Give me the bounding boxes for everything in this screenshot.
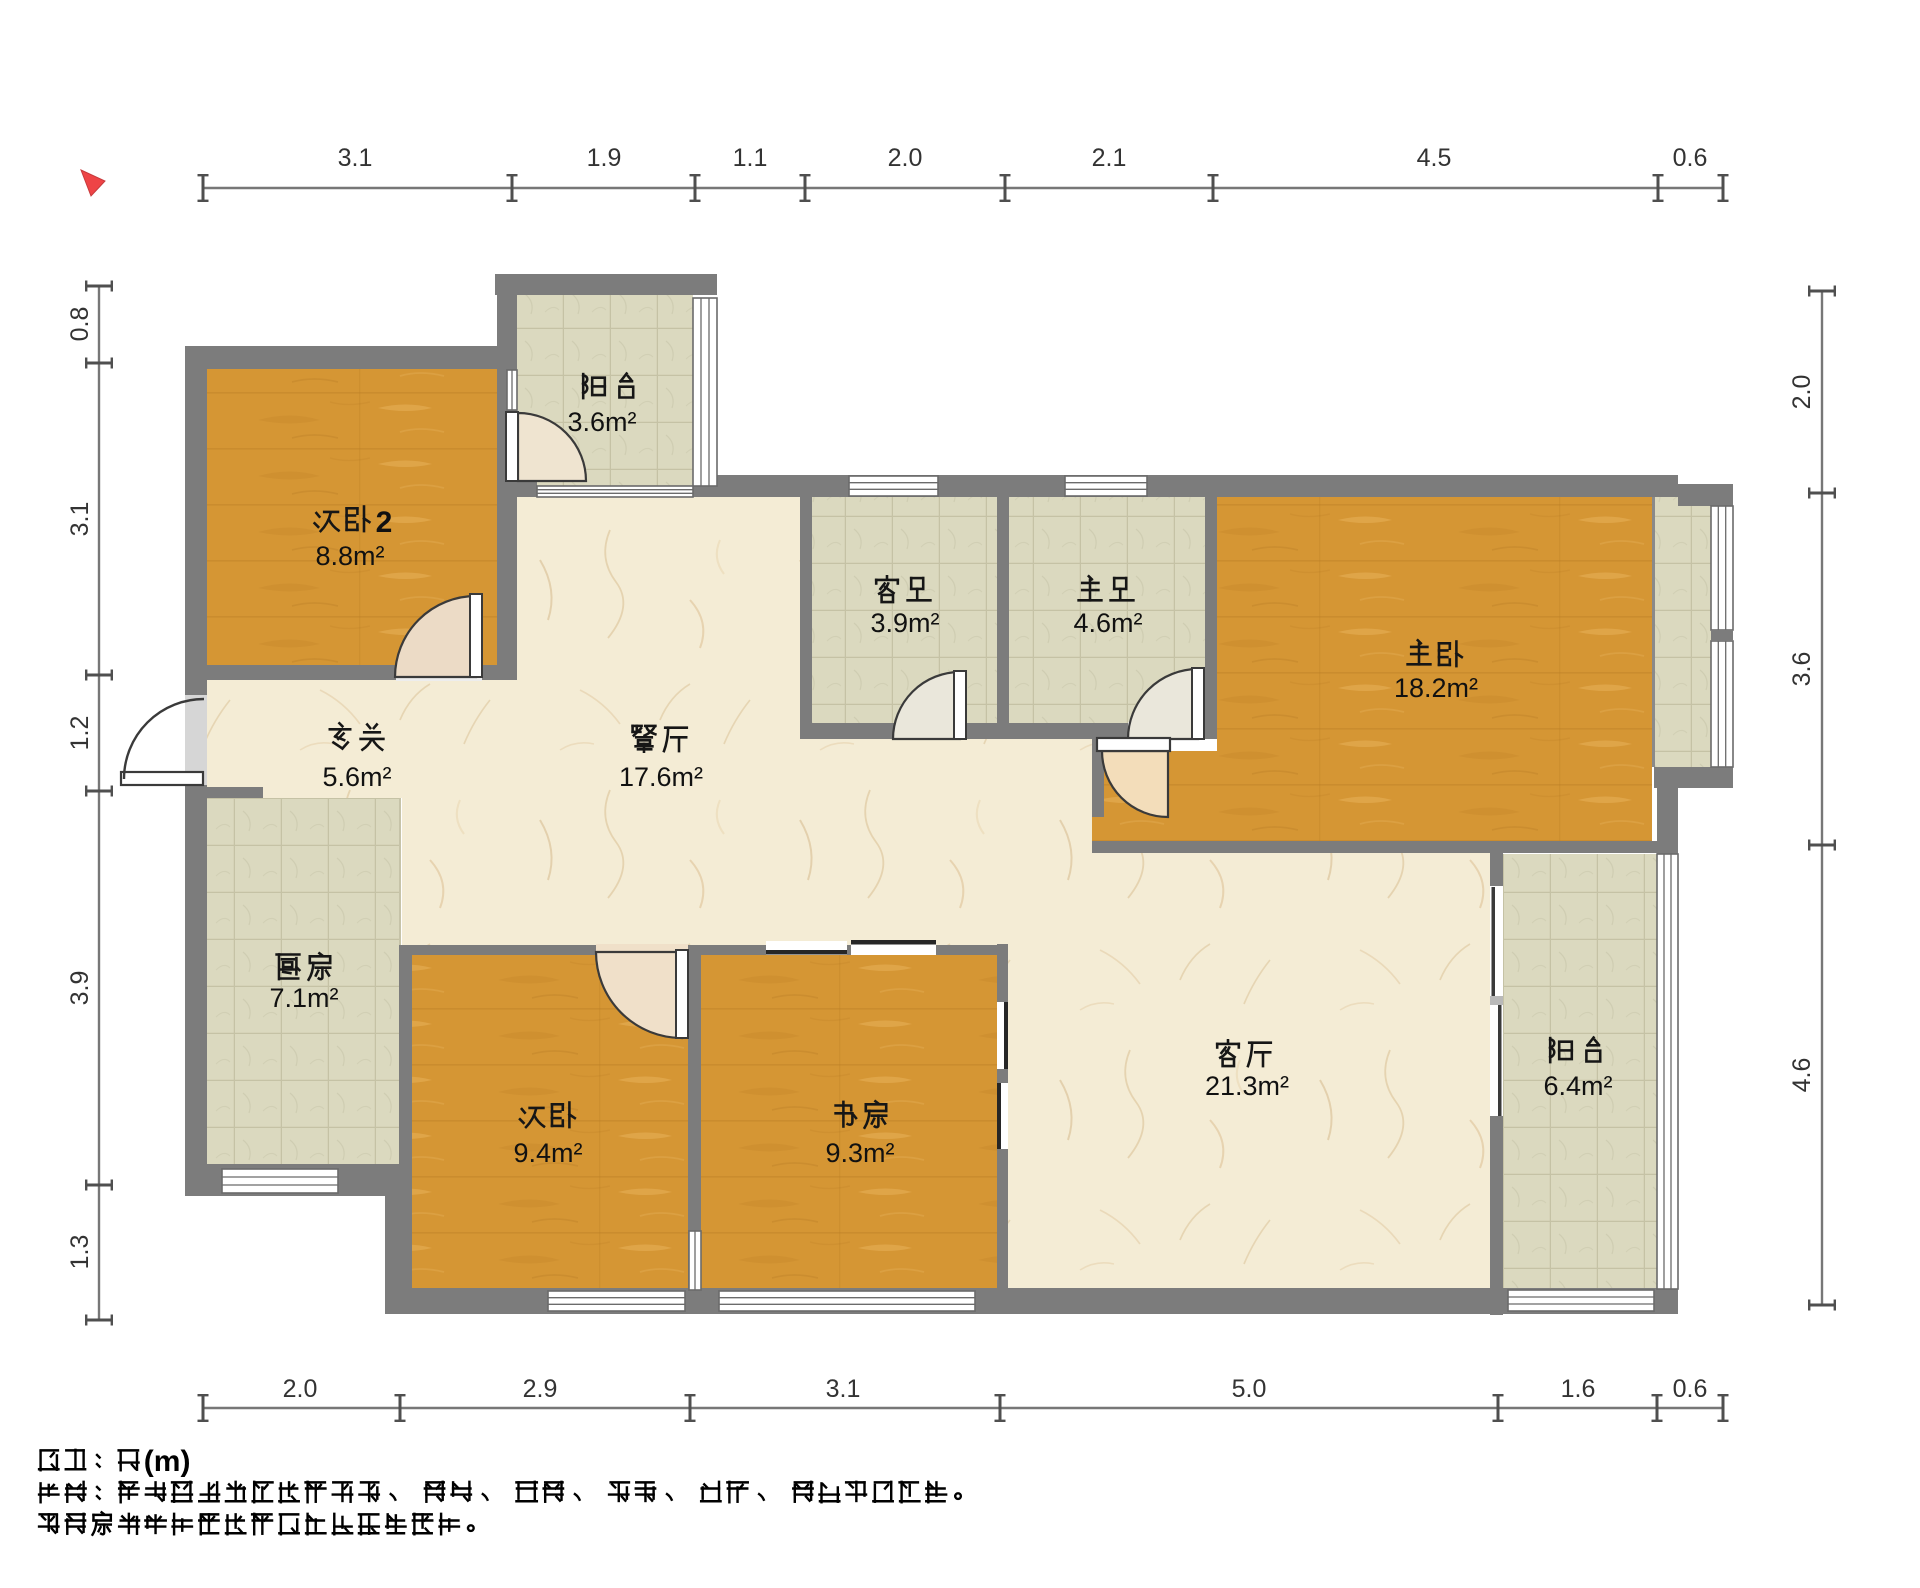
svg-text:5.0: 5.0 bbox=[1232, 1375, 1267, 1403]
svg-text:6.4m²: 6.4m² bbox=[1543, 1071, 1612, 1101]
svg-text:3.6m²: 3.6m² bbox=[567, 407, 636, 437]
svg-text:9.3m²: 9.3m² bbox=[825, 1138, 894, 1168]
svg-text:4.5: 4.5 bbox=[1417, 144, 1452, 172]
svg-text:17.6m²: 17.6m² bbox=[619, 762, 703, 792]
svg-text:1.9: 1.9 bbox=[587, 144, 622, 172]
svg-text:9.4m²: 9.4m² bbox=[513, 1138, 582, 1168]
svg-text:4.6: 4.6 bbox=[1788, 1058, 1816, 1093]
svg-text:0.6: 0.6 bbox=[1673, 144, 1708, 172]
svg-text:5.6m²: 5.6m² bbox=[322, 762, 391, 792]
svg-text:3.9: 3.9 bbox=[66, 971, 94, 1006]
svg-text:2.1: 2.1 bbox=[1092, 144, 1127, 172]
svg-text:1.3: 1.3 bbox=[66, 1235, 94, 1270]
svg-text:2.0: 2.0 bbox=[1788, 375, 1816, 410]
svg-text:3.1: 3.1 bbox=[338, 144, 373, 172]
svg-text:3.1: 3.1 bbox=[66, 502, 94, 537]
svg-text:3.9m²: 3.9m² bbox=[870, 608, 939, 638]
svg-text:0.8: 0.8 bbox=[66, 307, 94, 342]
svg-text:8.8m²: 8.8m² bbox=[315, 541, 384, 571]
svg-text:3.6: 3.6 bbox=[1788, 652, 1816, 687]
svg-text:18.2m²: 18.2m² bbox=[1394, 673, 1478, 703]
svg-text:2.0: 2.0 bbox=[283, 1375, 318, 1403]
svg-text:2.0: 2.0 bbox=[888, 144, 923, 172]
svg-text:1.2: 1.2 bbox=[66, 716, 94, 751]
svg-text:(m): (m) bbox=[144, 1445, 191, 1478]
svg-text:7.1m²: 7.1m² bbox=[269, 983, 338, 1013]
svg-text:0.6: 0.6 bbox=[1673, 1375, 1708, 1403]
svg-text:2: 2 bbox=[376, 506, 393, 539]
svg-text:1.6: 1.6 bbox=[1561, 1375, 1596, 1403]
svg-text:4.6m²: 4.6m² bbox=[1073, 608, 1142, 638]
svg-text:21.3m²: 21.3m² bbox=[1205, 1071, 1289, 1101]
svg-text:2.9: 2.9 bbox=[523, 1375, 558, 1403]
svg-text:1.1: 1.1 bbox=[733, 144, 768, 172]
svg-text:3.1: 3.1 bbox=[826, 1375, 861, 1403]
